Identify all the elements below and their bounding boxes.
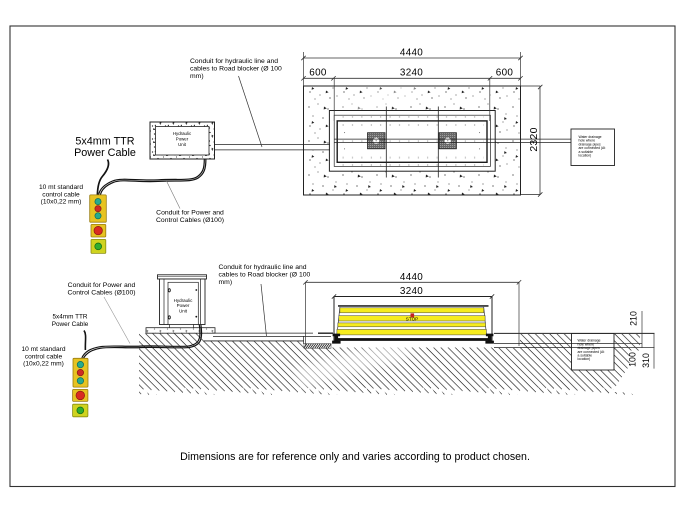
svg-text:Hydraulic: Hydraulic bbox=[173, 131, 192, 136]
svg-text:Conduit for Power and: Conduit for Power and bbox=[156, 210, 224, 217]
svg-text:Conduit for Power and: Conduit for Power and bbox=[68, 282, 136, 289]
svg-text:100: 100 bbox=[628, 352, 638, 367]
svg-text:cables to Road blocker (Ø 100: cables to Road blocker (Ø 100 bbox=[219, 271, 311, 278]
svg-text:310: 310 bbox=[641, 353, 651, 368]
svg-text:Unit: Unit bbox=[178, 142, 187, 147]
svg-text:4440: 4440 bbox=[400, 47, 423, 58]
svg-text:3240: 3240 bbox=[400, 286, 423, 297]
svg-text:(10x0,22 mm): (10x0,22 mm) bbox=[41, 198, 82, 205]
svg-text:location): location) bbox=[579, 154, 592, 158]
svg-text:10 mt standard: 10 mt standard bbox=[39, 184, 83, 191]
svg-text:3240: 3240 bbox=[400, 68, 423, 79]
svg-text:5x4mm TTR: 5x4mm TTR bbox=[52, 314, 87, 321]
svg-text:600: 600 bbox=[496, 68, 514, 79]
svg-text:Control Cables (Ø100): Control Cables (Ø100) bbox=[156, 217, 224, 224]
svg-text:Unit: Unit bbox=[179, 308, 188, 313]
svg-text:2320: 2320 bbox=[529, 127, 540, 151]
svg-text:600: 600 bbox=[309, 68, 327, 79]
svg-text:location): location) bbox=[578, 357, 591, 361]
svg-text:mm): mm) bbox=[219, 279, 233, 286]
svg-text:Conduit for hydraulic line and: Conduit for hydraulic line and bbox=[190, 58, 278, 65]
svg-text:control cable: control cable bbox=[42, 191, 80, 198]
svg-text:10 mt standard: 10 mt standard bbox=[22, 346, 66, 353]
svg-text:Power Cable: Power Cable bbox=[52, 321, 89, 328]
svg-text:4440: 4440 bbox=[400, 272, 423, 283]
svg-text:Conduit for hydraulic line and: Conduit for hydraulic line and bbox=[219, 264, 307, 271]
svg-text:Power Cable: Power Cable bbox=[74, 147, 136, 159]
svg-text:Dimensions are for reference o: Dimensions are for reference only and va… bbox=[180, 451, 530, 463]
svg-text:Power: Power bbox=[176, 136, 189, 141]
svg-text:STOP: STOP bbox=[406, 316, 418, 321]
svg-text:mm): mm) bbox=[190, 73, 204, 80]
svg-text:210: 210 bbox=[629, 311, 639, 326]
svg-text:5x4mm TTR: 5x4mm TTR bbox=[75, 136, 134, 148]
svg-text:Control Cables (Ø100): Control Cables (Ø100) bbox=[68, 290, 136, 297]
svg-text:(10x0,22 mm): (10x0,22 mm) bbox=[23, 361, 64, 368]
svg-text:cables to Road blocker (Ø 100: cables to Road blocker (Ø 100 bbox=[190, 66, 282, 73]
svg-text:control cable: control cable bbox=[25, 353, 63, 360]
